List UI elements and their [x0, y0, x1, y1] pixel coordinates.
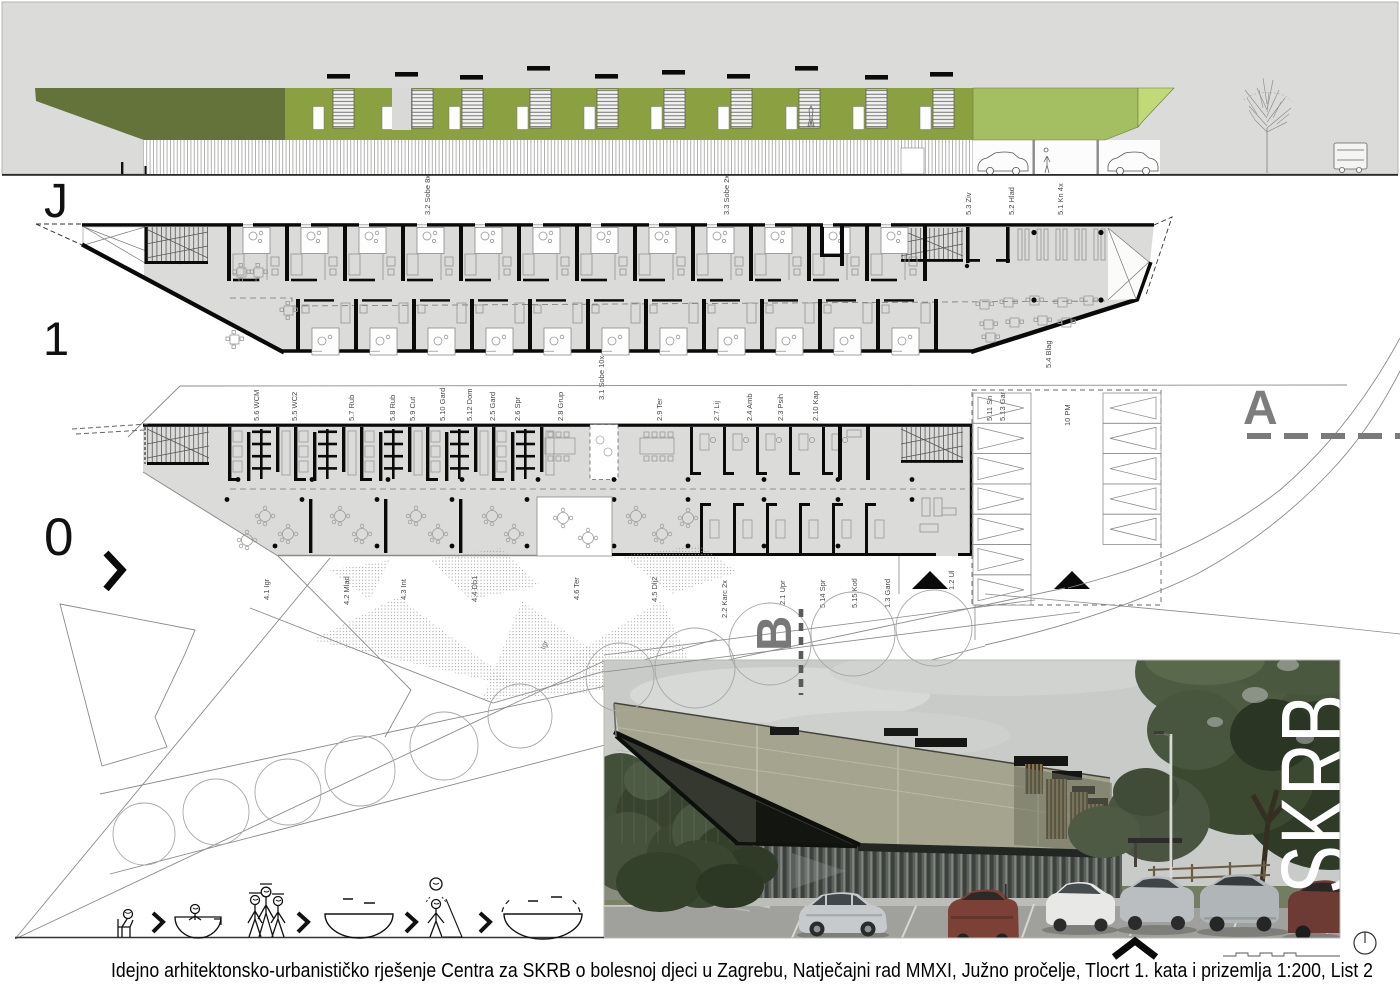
svg-text:3.1 Sobe 10x: 3.1 Sobe 10x: [597, 356, 606, 400]
svg-text:3.2 Sobe 8x: 3.2 Sobe 8x: [423, 175, 432, 215]
svg-text:0: 0: [44, 508, 73, 567]
svg-text:5.9 Cut: 5.9 Cut: [408, 396, 417, 421]
svg-text:5.13 Gar: 5.13 Gar: [998, 391, 1007, 421]
svg-text:5.7 Rub: 5.7 Rub: [347, 395, 356, 421]
svg-text:5.14 Spr: 5.14 Spr: [818, 579, 827, 608]
svg-text:B: B: [748, 616, 802, 651]
svg-text:2.9 Ter: 2.9 Ter: [655, 398, 664, 421]
svg-text:5.4 Blag: 5.4 Blag: [1044, 340, 1053, 368]
svg-text:2.3 Psih: 2.3 Psih: [776, 394, 785, 421]
svg-text:2.6 Spr: 2.6 Spr: [513, 396, 522, 421]
svg-text:5.1 Kn 4x: 5.1 Kn 4x: [1056, 183, 1065, 215]
svg-text:2.7 Lij: 2.7 Lij: [712, 401, 721, 421]
svg-text:2.10 Kap: 2.10 Kap: [811, 391, 820, 421]
svg-text:5.3 Ziv: 5.3 Ziv: [964, 192, 973, 215]
svg-text:2.2 Karc 2x: 2.2 Karc 2x: [720, 580, 729, 618]
svg-text:4.3 Int: 4.3 Int: [399, 578, 408, 600]
svg-text:5.15 Kotl: 5.15 Kotl: [850, 578, 859, 608]
svg-text:3.3 Sobe 2x: 3.3 Sobe 2x: [722, 175, 731, 215]
svg-text:J: J: [44, 175, 68, 228]
svg-text:5.5 WC2: 5.5 WC2: [290, 392, 299, 421]
svg-text:Idejno arhitektonsko-urbanisti: Idejno arhitektonsko-urbanističko rješen…: [111, 959, 1373, 982]
svg-text:1: 1: [43, 312, 69, 365]
svg-text:10 PM: 10 PM: [1063, 404, 1072, 426]
svg-text:5.2 Hlad: 5.2 Hlad: [1007, 187, 1016, 215]
svg-text:5.8 Rub: 5.8 Rub: [388, 395, 397, 421]
svg-text:1.3 Gard: 1.3 Gard: [883, 579, 892, 608]
svg-text:2.5 Gard: 2.5 Gard: [488, 392, 497, 421]
svg-text:2.8 Grup: 2.8 Grup: [556, 392, 565, 421]
svg-text:4.1 Igr: 4.1 Igr: [262, 578, 271, 600]
svg-text:5.12 Dom: 5.12 Dom: [465, 388, 474, 421]
svg-text:5.10 Gard: 5.10 Gard: [438, 388, 447, 421]
svg-text:2.1 Upr: 2.1 Upr: [778, 580, 787, 605]
svg-text:4.6 Ter: 4.6 Ter: [572, 577, 581, 600]
svg-text:5.6 WCM: 5.6 WCM: [252, 390, 261, 421]
svg-text:2.4 Amb: 2.4 Amb: [745, 393, 754, 421]
svg-text:A: A: [1243, 382, 1278, 435]
svg-text:1.2 Ul: 1.2 Ul: [947, 570, 956, 590]
